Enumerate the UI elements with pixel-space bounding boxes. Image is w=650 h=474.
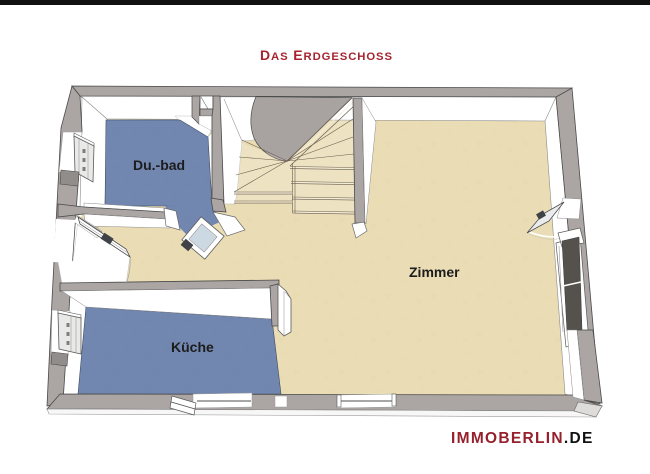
svg-text:Du.-bad: Du.-bad	[133, 157, 185, 173]
svg-text:Küche: Küche	[171, 339, 214, 355]
svg-text:Zimmer: Zimmer	[409, 264, 460, 280]
svg-text:IMMOBERLIN.DE: IMMOBERLIN.DE	[451, 430, 594, 447]
